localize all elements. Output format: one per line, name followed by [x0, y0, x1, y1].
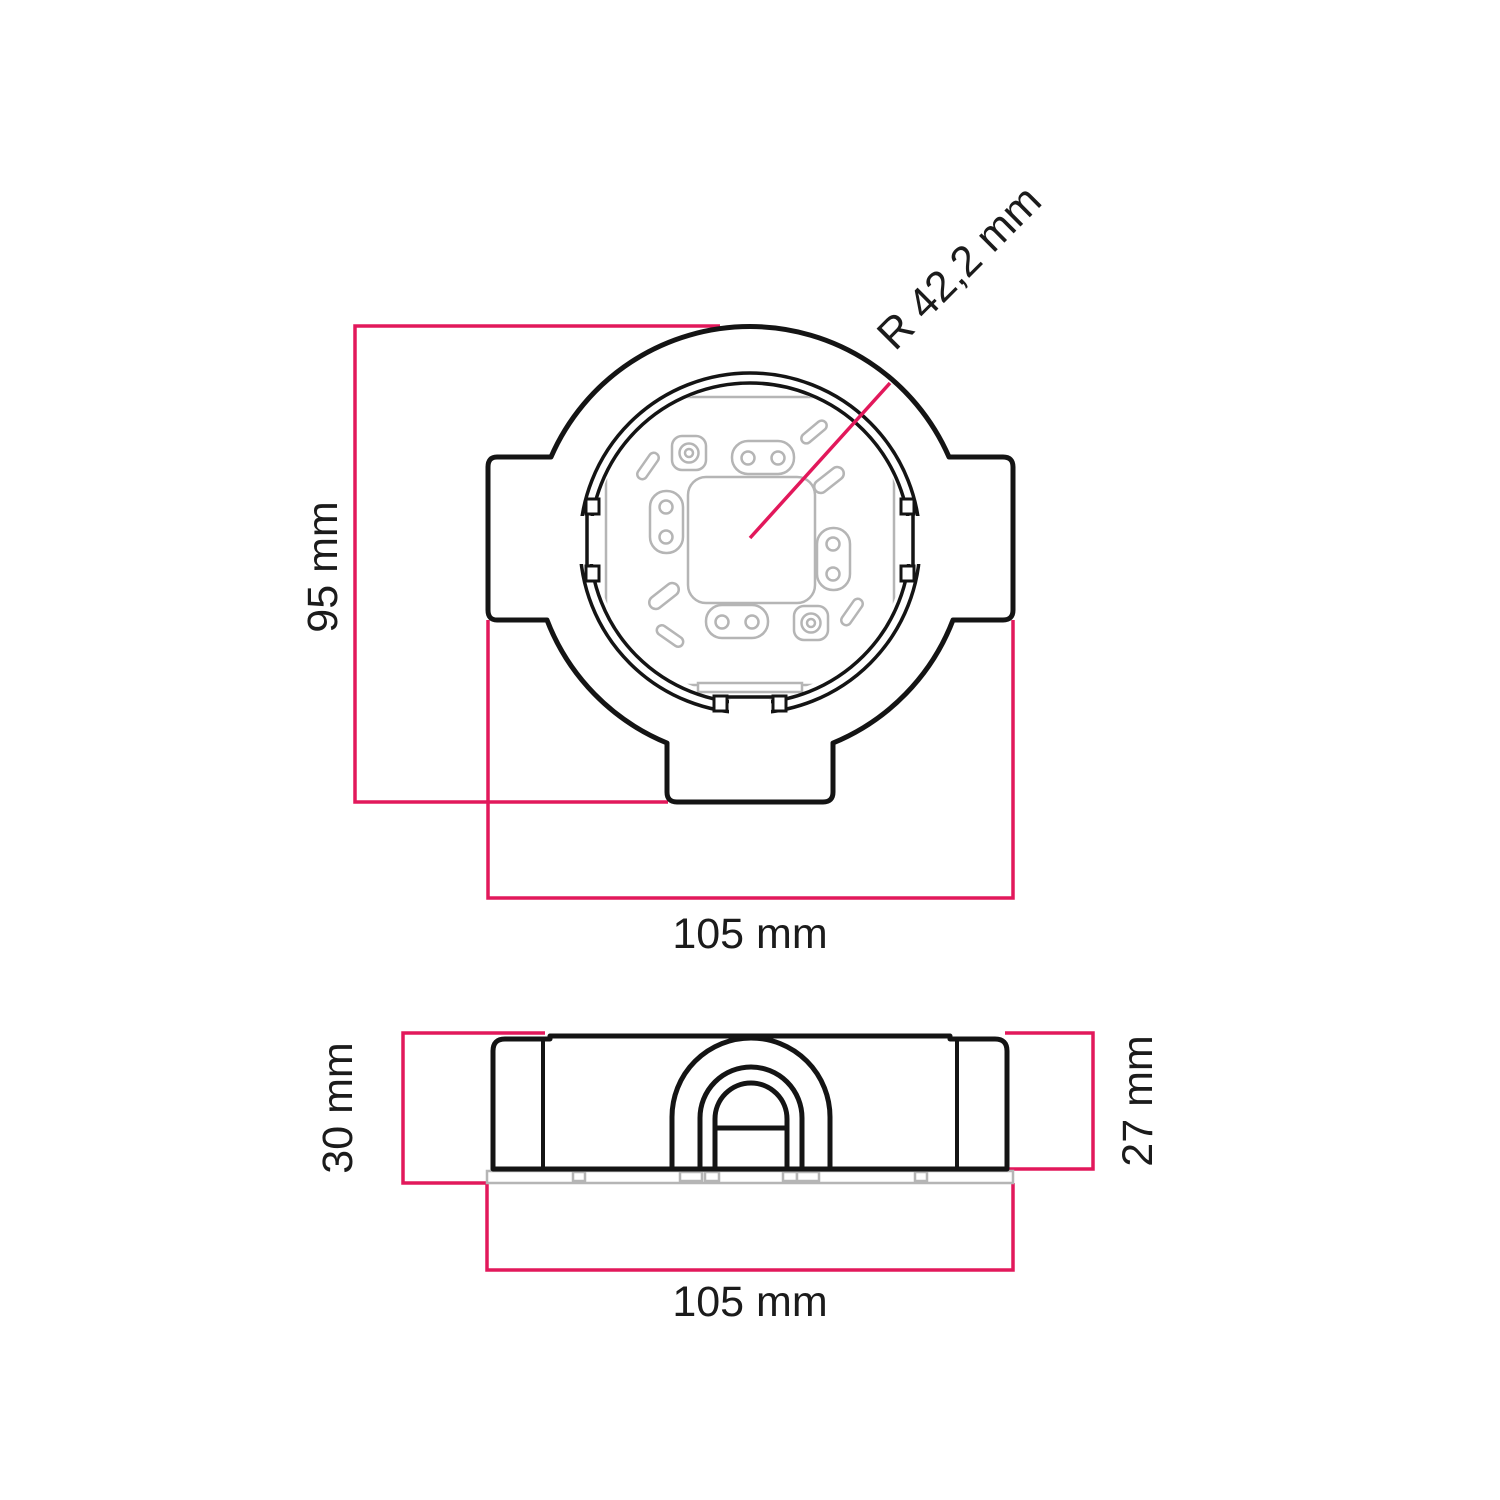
latch-tab — [783, 1172, 797, 1181]
dim-105mm-side-bracket — [487, 1183, 1013, 1270]
cable-clamp-bar — [698, 683, 802, 692]
clip-tab — [586, 566, 599, 581]
latch-tab — [680, 1172, 702, 1181]
clip-tab — [901, 566, 914, 581]
dim-27mm-bracket — [1005, 1033, 1093, 1169]
ring-gap-bottom — [729, 700, 771, 720]
clip-tab — [773, 696, 786, 711]
latch-tab — [915, 1172, 927, 1181]
latch-tab — [573, 1172, 585, 1181]
dim-radius-label: R 42,2 mm — [868, 176, 1051, 359]
technical-dimension-drawing: 95 mm 105 mm R 42,2 mm 30 mm 27 mm 105 m… — [0, 0, 1500, 1500]
clip-tab — [714, 696, 727, 711]
latch-tab — [705, 1172, 719, 1181]
latch-tab — [797, 1172, 819, 1181]
terminal-block-outline — [688, 477, 815, 603]
dim-27mm-label: 27 mm — [1114, 1035, 1162, 1166]
side-view — [487, 1036, 1013, 1183]
screw-pad-bottom-right — [794, 606, 828, 640]
screw-pad-top-left — [672, 436, 706, 470]
clip-tab — [901, 499, 914, 514]
dim-95mm-label: 95 mm — [299, 501, 347, 632]
dim-105mm-top-label: 105 mm — [672, 910, 827, 958]
clip-tab — [586, 499, 599, 514]
dim-105mm-side-label: 105 mm — [672, 1278, 827, 1326]
top-view — [488, 327, 1013, 802]
baseplate-edge — [487, 1171, 1013, 1183]
dim-30mm-label: 30 mm — [314, 1042, 362, 1173]
drawing-canvas: 95 mm 105 mm R 42,2 mm 30 mm 27 mm 105 m… — [0, 0, 1500, 1500]
side-body-outline — [493, 1036, 1007, 1169]
